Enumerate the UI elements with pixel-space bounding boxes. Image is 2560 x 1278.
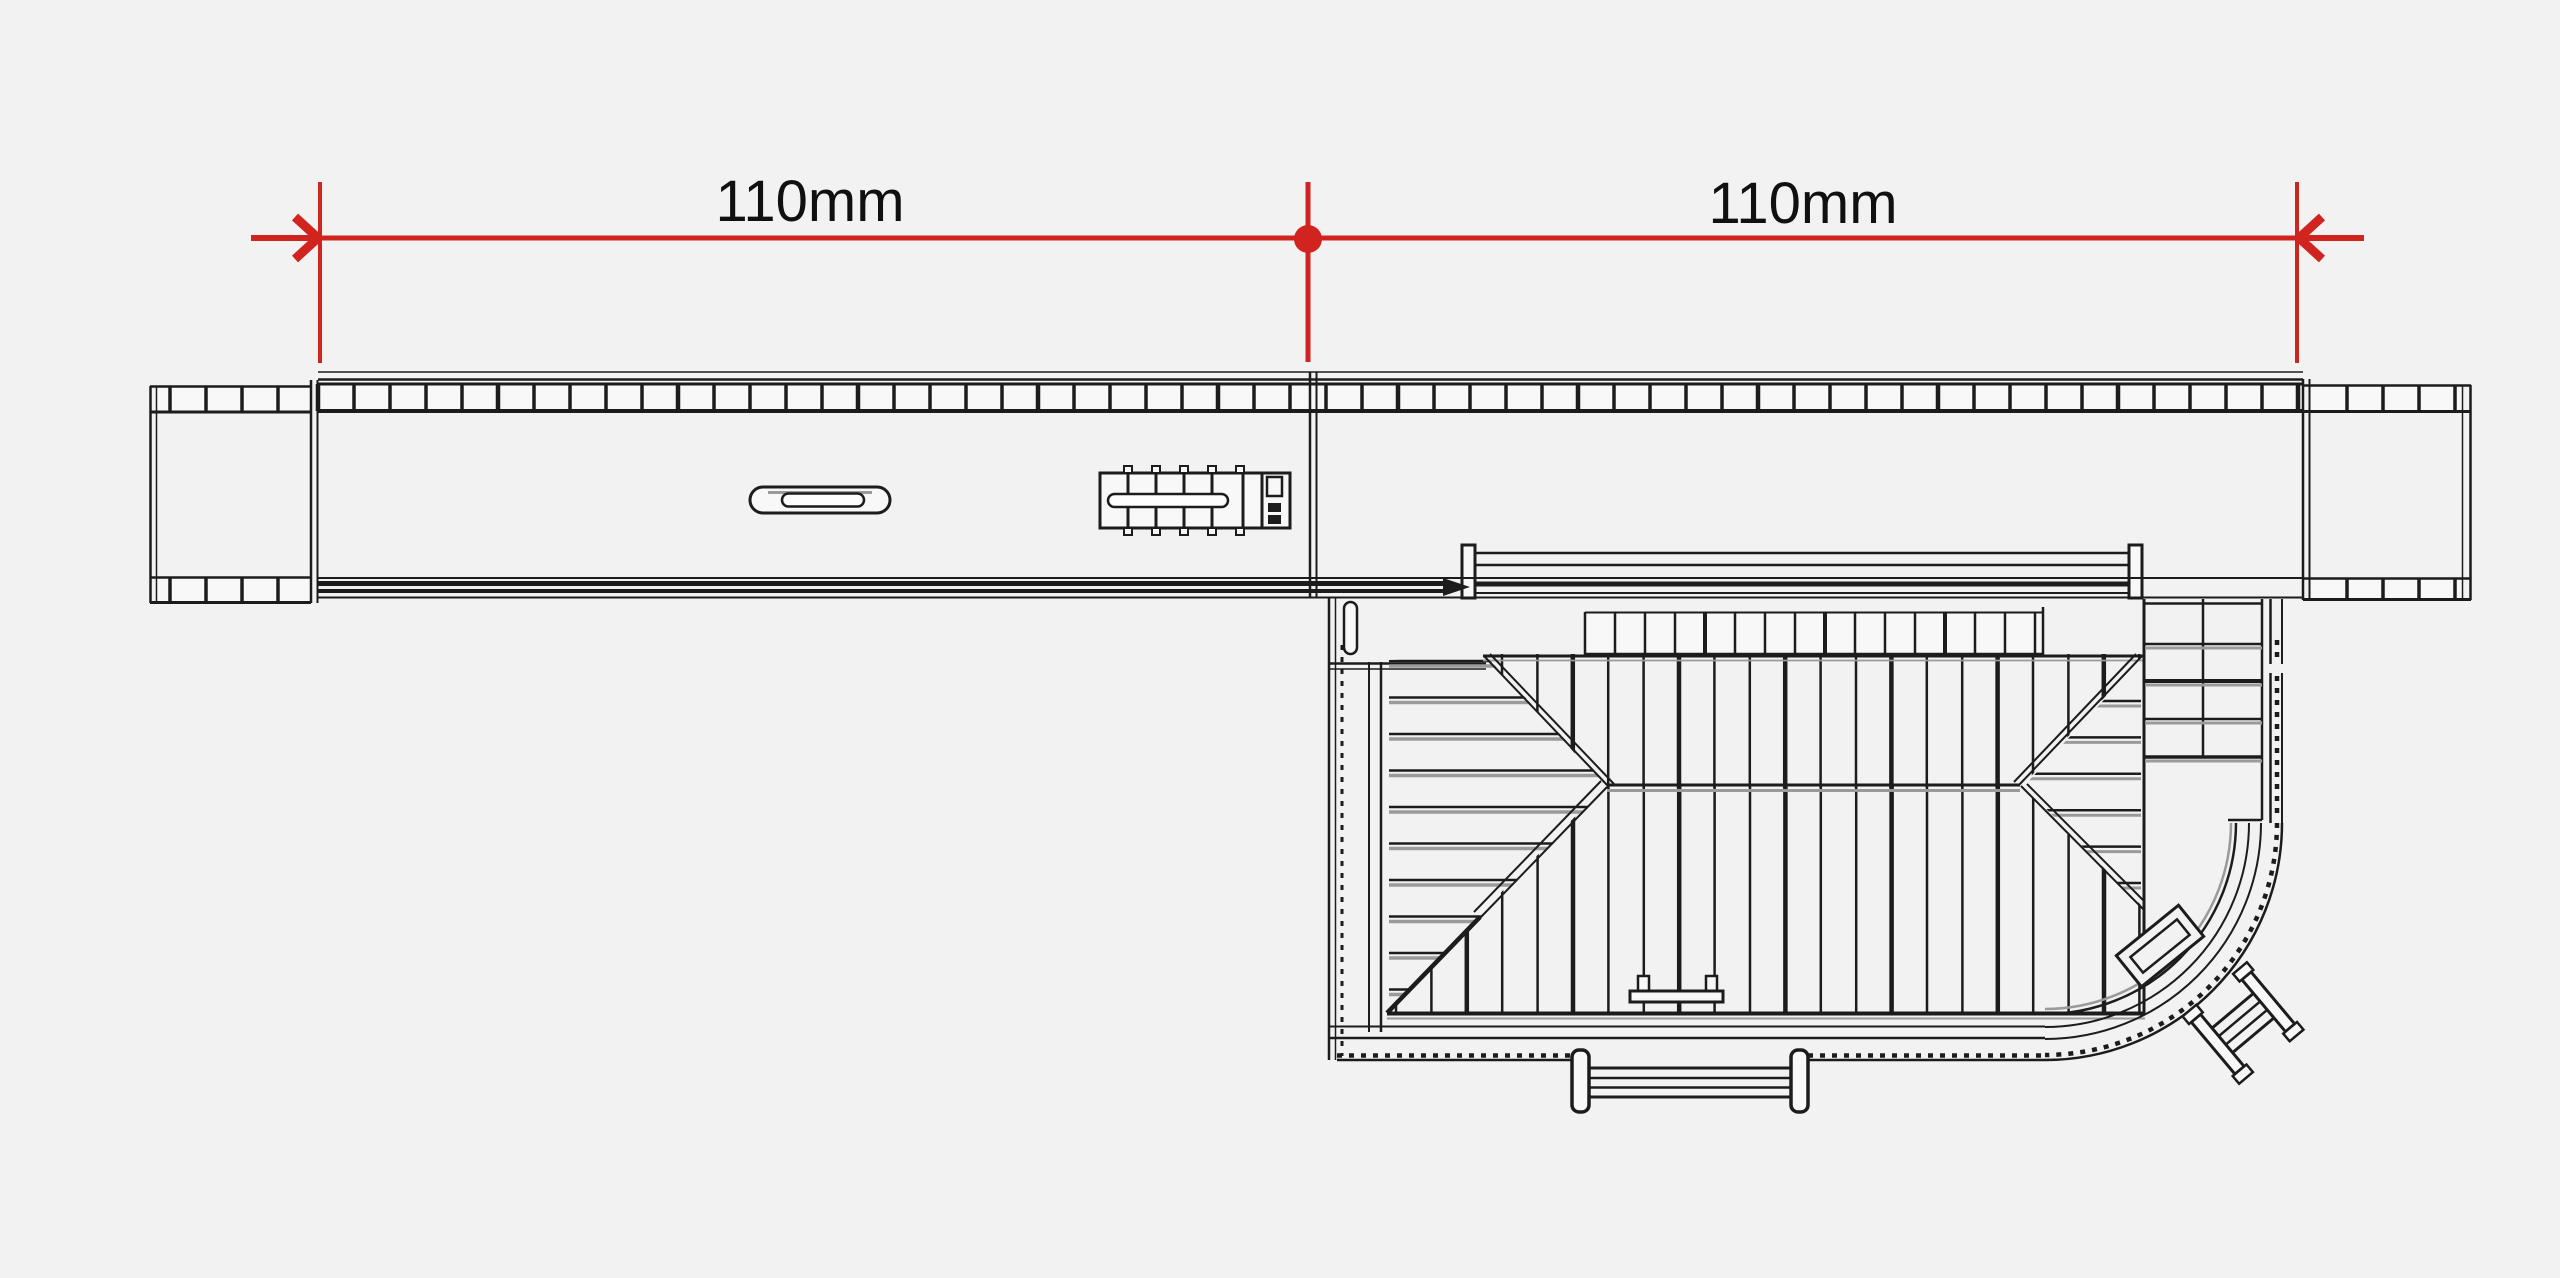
building-right-wall — [2264, 599, 2285, 823]
entrance-steps — [2145, 599, 2262, 820]
dimension-annotation: 110mm 110mm — [251, 169, 2364, 363]
canopy-post-left — [1462, 545, 1475, 598]
station-building — [1329, 545, 2303, 1112]
wall-notch — [2264, 664, 2285, 673]
vent-pipe — [1344, 602, 1357, 654]
dimension-label-right: 110mm — [1708, 171, 1897, 236]
hip-lines — [1387, 654, 2144, 1013]
roof-plan — [1387, 599, 2145, 1019]
veranda-deck-edge — [1337, 1056, 2045, 1061]
canopy-fascia-band — [1585, 607, 2043, 655]
veranda-wall — [1330, 1027, 2045, 1039]
veranda-fence — [1572, 1050, 1808, 1112]
platform-shelter — [1100, 466, 1290, 535]
roof-left-hip — [1387, 661, 1612, 995]
platform — [150, 372, 2471, 603]
fence-post-right — [1791, 1050, 1808, 1112]
platform-left-ramp — [150, 380, 318, 603]
corner-steps — [2183, 962, 2304, 1083]
drawing-canvas: 110mm 110mm — [0, 0, 2560, 1278]
fence-post-left — [1572, 1050, 1589, 1112]
centre-point — [1294, 225, 1322, 253]
platform-bench — [750, 487, 890, 513]
platform-right-ramp — [2303, 379, 2471, 600]
dimension-label-left: 110mm — [715, 169, 904, 234]
roof-bottom-slope — [1396, 782, 2139, 1015]
veranda-bench — [1630, 976, 1723, 1002]
platform-canopy — [1462, 545, 2142, 598]
technical-drawing: 110mm 110mm — [0, 0, 2560, 1278]
canopy-post-right — [2129, 545, 2142, 598]
roof-top-slope — [1502, 652, 2139, 790]
